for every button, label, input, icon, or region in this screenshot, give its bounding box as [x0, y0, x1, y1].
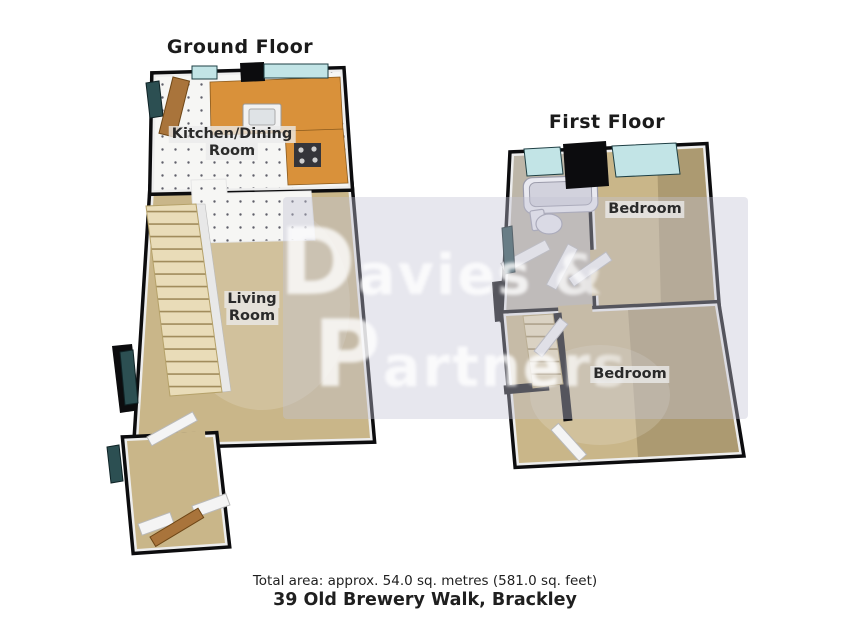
room-label-bedroom-bottom: Bedroom: [590, 366, 669, 383]
floorplan-drawing: [0, 0, 850, 618]
room-label-living: Living Room: [224, 291, 279, 325]
address-text: 39 Old Brewery Walk, Brackley: [0, 590, 850, 610]
bedroom-top-window-icon: [612, 143, 680, 177]
kitchen-chimney-wall: [240, 62, 265, 82]
first-floor-title: First Floor: [549, 111, 665, 133]
hob-icon: [294, 143, 321, 167]
first-floor-plan: [492, 141, 739, 463]
total-area-text: Total area: approx. 54.0 sq. metres (581…: [0, 573, 850, 589]
bathroom-window-icon: [524, 147, 563, 176]
kitchen-window-wide-icon: [264, 64, 328, 78]
floorplan-image: Davies & Partners Ground Floor First Flo…: [0, 0, 850, 618]
hall-side-window-icon: [107, 445, 123, 483]
room-label-bedroom-top: Bedroom: [605, 201, 684, 218]
first-chimney-wall: [563, 141, 609, 189]
ground-floor-title: Ground Floor: [167, 36, 313, 58]
room-label-kitchen-dining: Kitchen/Dining Room: [169, 126, 296, 160]
kitchen-window-icon: [192, 66, 217, 79]
